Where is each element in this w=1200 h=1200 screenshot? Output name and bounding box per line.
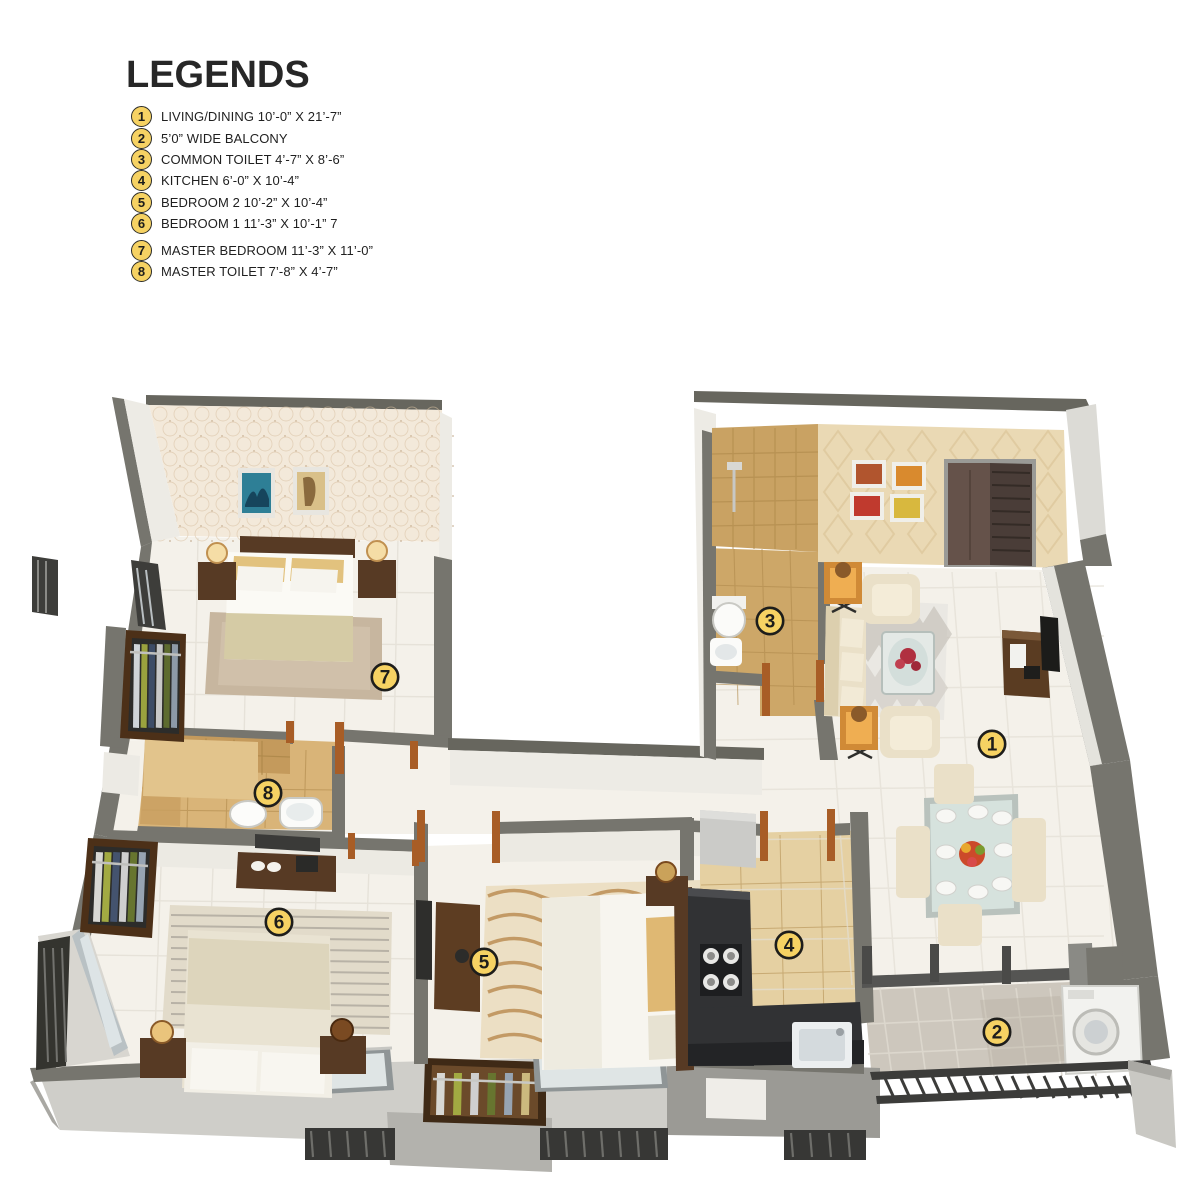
svg-text:3: 3 — [765, 612, 776, 633]
svg-text:6: 6 — [274, 913, 285, 934]
svg-text:5: 5 — [479, 953, 490, 974]
svg-text:4: 4 — [784, 936, 795, 957]
svg-text:7: 7 — [380, 668, 391, 689]
svg-text:1: 1 — [987, 735, 998, 756]
svg-text:8: 8 — [263, 784, 274, 805]
svg-text:2: 2 — [992, 1023, 1003, 1044]
